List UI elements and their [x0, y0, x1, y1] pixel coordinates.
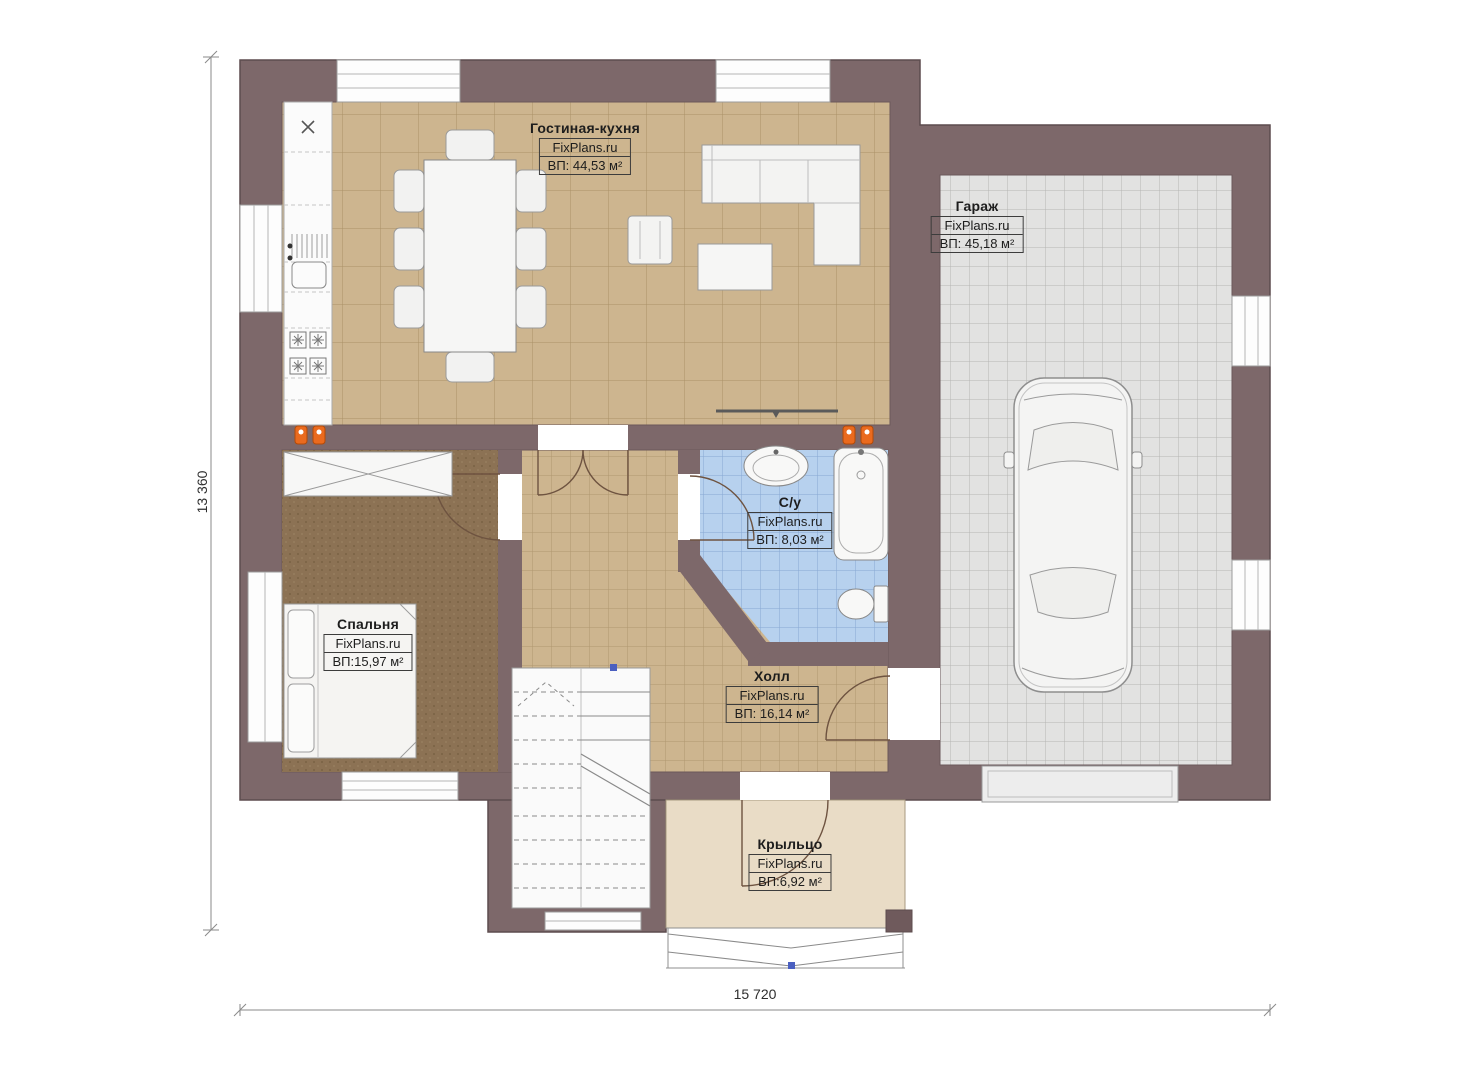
- floor-plan-drawing: [0, 0, 1474, 1080]
- window: [240, 205, 282, 312]
- dimension-marker: [788, 962, 795, 969]
- radiator-icon: [295, 426, 307, 444]
- window: [337, 60, 460, 102]
- window: [1232, 296, 1270, 366]
- pillow: [288, 610, 314, 678]
- watermark-text: FixPlans.ru: [324, 635, 411, 653]
- room-info-box: FixPlans.ru ВП: 16,14 м²: [726, 686, 819, 723]
- room-name: Спальня: [323, 616, 412, 632]
- room-name: С/у: [747, 494, 832, 510]
- toilet: [838, 586, 888, 622]
- dimension-marker: [610, 664, 617, 671]
- garage-door: [982, 766, 1178, 802]
- pillow: [288, 684, 314, 752]
- watermark-text: FixPlans.ru: [540, 139, 631, 157]
- car-rear-window: [1030, 568, 1116, 619]
- kitchen-counter: [284, 102, 332, 425]
- room-name: Холл: [726, 668, 819, 684]
- car: [1004, 378, 1142, 692]
- room-label-living-kitchen: Гостиная-кухня FixPlans.ru ВП: 44,53 м²: [530, 120, 640, 175]
- room-info-box: FixPlans.ru ВП: 44,53 м²: [539, 138, 632, 175]
- radiator-icon: [313, 426, 325, 444]
- window: [342, 772, 458, 800]
- chair: [394, 286, 424, 328]
- armchair: [628, 216, 672, 264]
- chair: [394, 170, 424, 212]
- floor-plan-page: Гостиная-кухня FixPlans.ru ВП: 44,53 м² …: [0, 0, 1474, 1080]
- radiator-icon: [843, 426, 855, 444]
- dimension-value-horizontal: 15 720: [705, 986, 805, 1002]
- chair: [394, 228, 424, 270]
- dimension-line-horizontal: [234, 1004, 1276, 1016]
- window: [716, 60, 830, 102]
- porch-step-sides: [668, 928, 903, 968]
- porch-step-chevron: [668, 952, 903, 966]
- dimension-value-vertical: 13 360: [194, 442, 210, 542]
- chair: [446, 352, 494, 382]
- room-name: Крыльцо: [748, 836, 831, 852]
- watermark-text: FixPlans.ru: [727, 687, 818, 705]
- car-mirror: [1132, 452, 1142, 468]
- window: [1232, 560, 1270, 630]
- room-info-box: FixPlans.ru ВП:6,92 м²: [748, 854, 831, 891]
- coffee-table: [698, 244, 772, 290]
- room-area: ВП:15,97 м²: [324, 653, 411, 670]
- room-area: ВП:6,92 м²: [749, 873, 830, 890]
- room-area: ВП: 8,03 м²: [748, 531, 831, 548]
- wall-bathroom-bottom: [748, 642, 888, 666]
- chair: [516, 228, 546, 270]
- room-info-box: FixPlans.ru ВП: 8,03 м²: [747, 512, 832, 549]
- window: [248, 572, 282, 742]
- room-info-box: FixPlans.ru ВП:15,97 м²: [323, 634, 412, 671]
- room-info-box: FixPlans.ru ВП: 45,18 м²: [931, 216, 1024, 253]
- porch-step-chevron: [668, 934, 903, 948]
- room-label-hall: Холл FixPlans.ru ВП: 16,14 м²: [726, 668, 819, 723]
- room-name: Гараж: [931, 198, 1024, 214]
- car-mirror: [1004, 452, 1014, 468]
- chair: [446, 130, 494, 160]
- dining-table: [424, 160, 516, 352]
- room-label-porch: Крыльцо FixPlans.ru ВП:6,92 м²: [748, 836, 831, 891]
- room-label-bedroom: Спальня FixPlans.ru ВП:15,97 м²: [323, 616, 412, 671]
- room-area: ВП: 16,14 м²: [727, 705, 818, 722]
- porch-pillar: [886, 910, 912, 932]
- bathtub: [834, 448, 888, 560]
- room-label-bathroom: С/у FixPlans.ru ВП: 8,03 м²: [747, 494, 832, 549]
- room-area: ВП: 44,53 м²: [540, 157, 631, 174]
- chair: [516, 170, 546, 212]
- staircase: [512, 664, 650, 908]
- watermark-text: FixPlans.ru: [932, 217, 1023, 235]
- window: [545, 912, 641, 930]
- chair: [516, 286, 546, 328]
- room-name: Гостиная-кухня: [530, 120, 640, 136]
- watermark-text: FixPlans.ru: [749, 855, 830, 873]
- washbasin: [744, 446, 808, 486]
- room-label-garage: Гараж FixPlans.ru ВП: 45,18 м²: [931, 198, 1024, 253]
- watermark-text: FixPlans.ru: [748, 513, 831, 531]
- radiator-icon: [861, 426, 873, 444]
- room-area: ВП: 45,18 м²: [932, 235, 1023, 252]
